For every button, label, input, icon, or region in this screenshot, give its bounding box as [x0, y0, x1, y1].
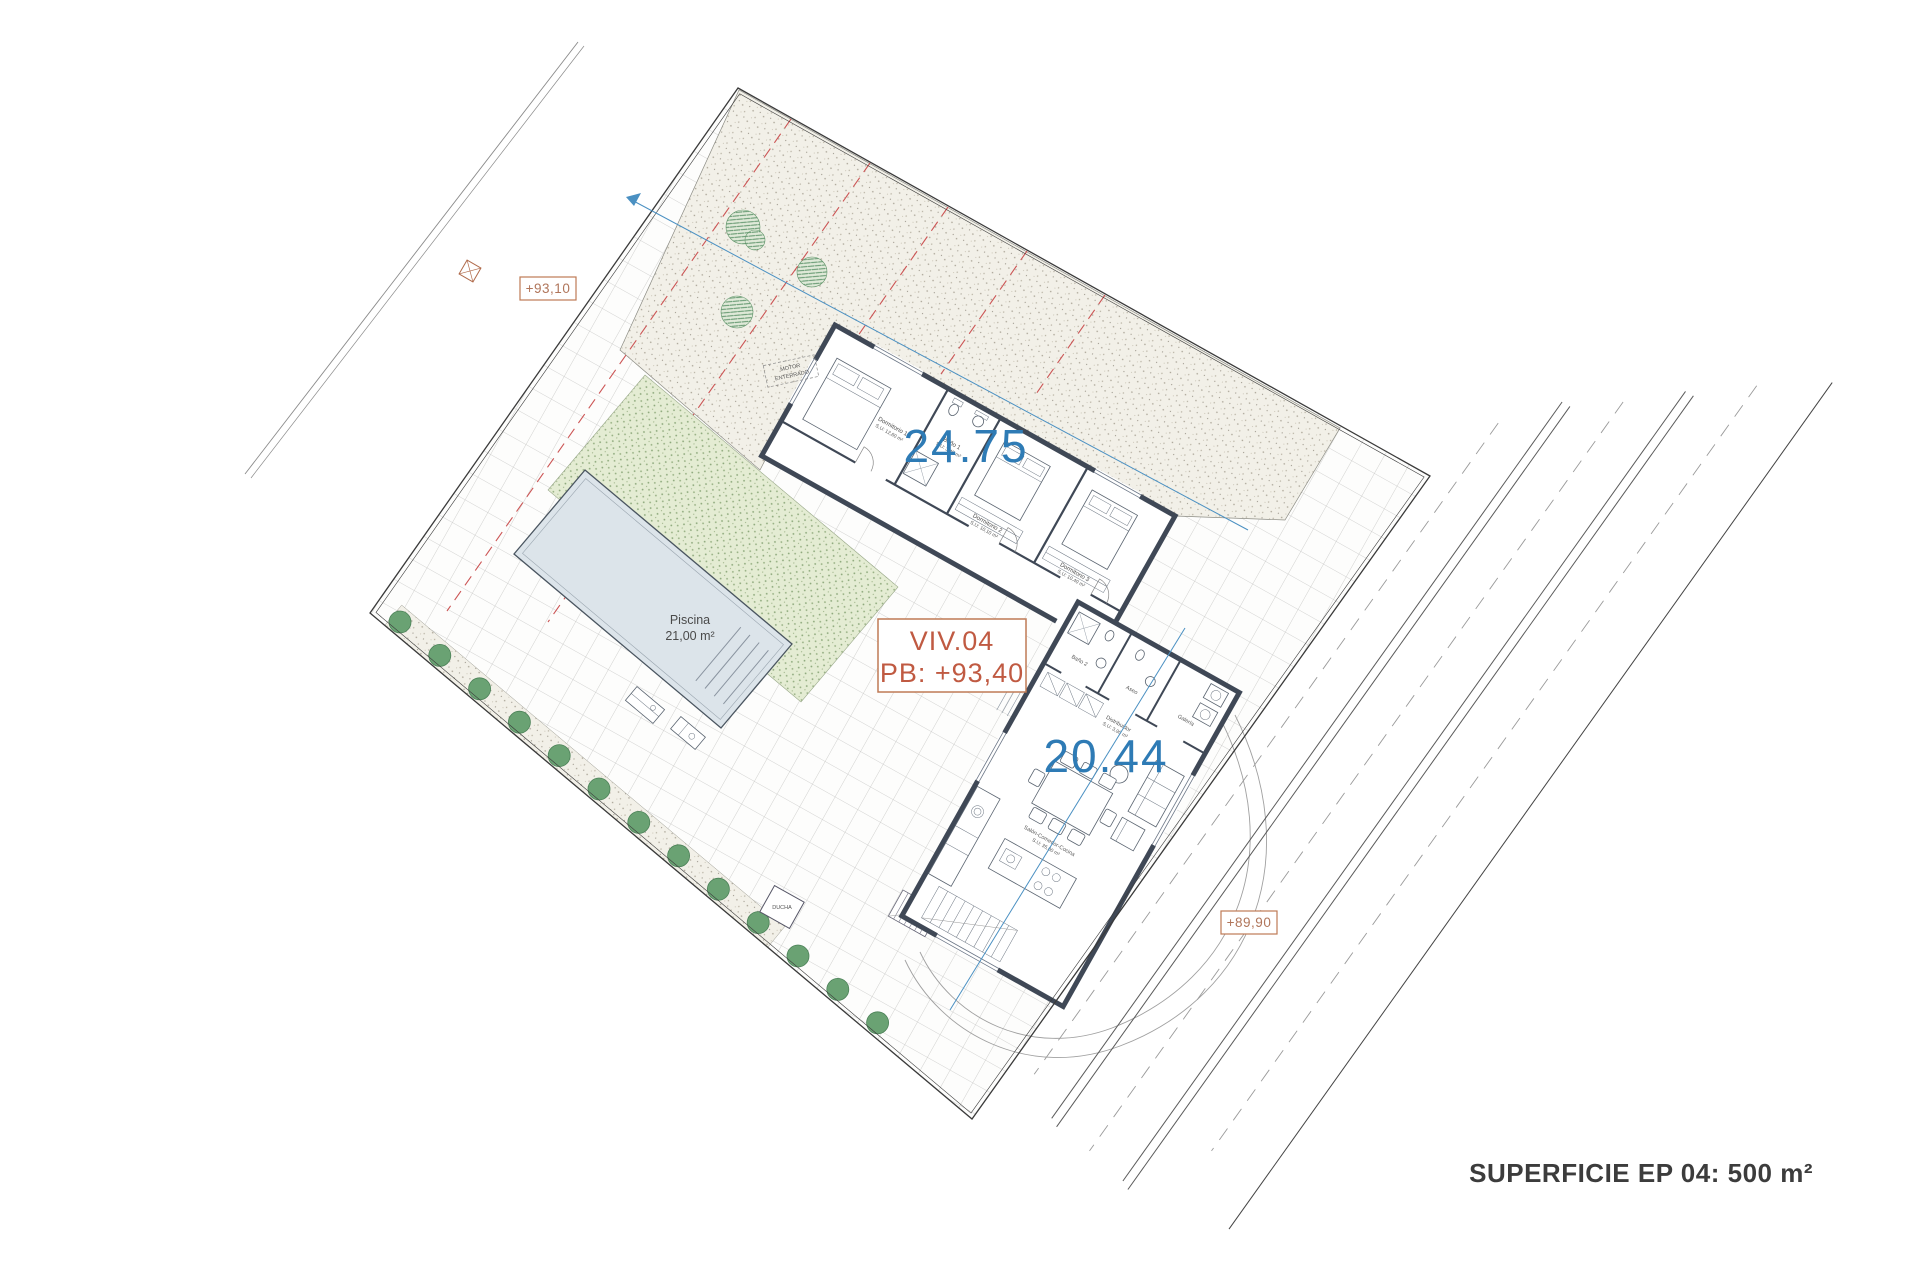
level-box-bottom: +89,90 [1221, 911, 1277, 934]
unit-level: PB: +93,40 [880, 658, 1024, 688]
unit-label-box: VIV.04 PB: +93,40 [878, 619, 1026, 692]
pool-area: 21,00 m² [665, 629, 714, 643]
level-top-value: +93,10 [526, 281, 571, 296]
floor-plan-canvas: Dormitorio 1 S.U: 12,60 m² Baño 1 S.U: 3… [0, 0, 1920, 1280]
level-box-top: +93,10 [520, 277, 576, 300]
unit-code: VIV.04 [910, 626, 995, 656]
level-bottom-value: +89,90 [1227, 915, 1272, 930]
area-number-lower: 20.44 [1043, 730, 1168, 782]
shower-label: DUCHA [772, 905, 792, 911]
pool-name: Piscina [670, 613, 710, 627]
page-title: SUPERFICIE EP 04: 500 m² [1469, 1158, 1813, 1188]
area-number-upper: 24.75 [903, 420, 1028, 472]
